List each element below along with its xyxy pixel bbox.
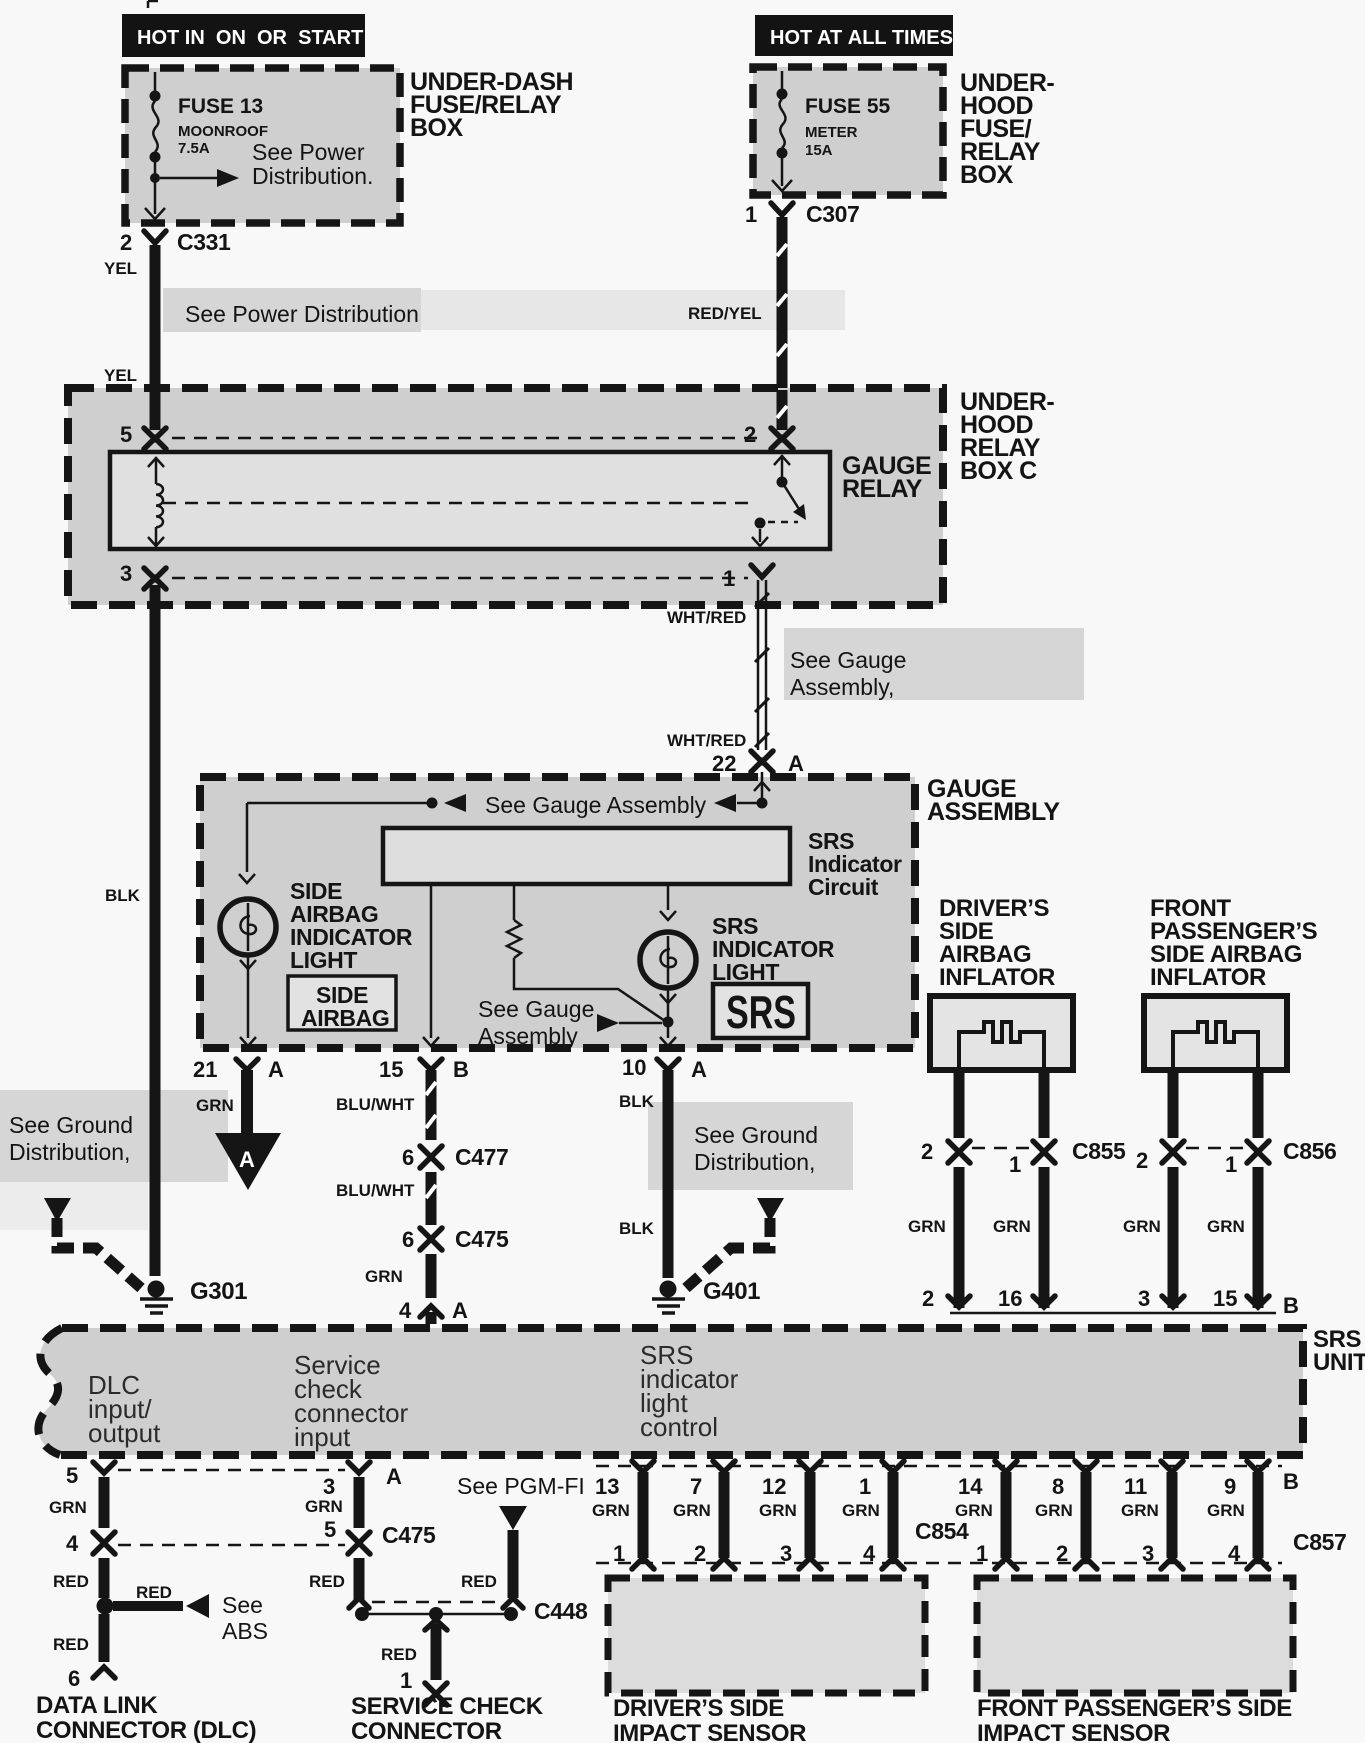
svg-text:14: 14	[958, 1474, 983, 1499]
svg-text:See PGM-FI: See PGM-FI	[457, 1473, 585, 1499]
svg-text:INFLATOR: INFLATOR	[939, 964, 1055, 991]
svg-text:5: 5	[120, 422, 132, 447]
svg-text:2: 2	[1136, 1148, 1148, 1173]
svg-text:2: 2	[120, 230, 132, 255]
svg-text:INFLATOR: INFLATOR	[1150, 964, 1266, 991]
svg-text:BLK: BLK	[619, 1219, 655, 1238]
svg-text:IMPACT SENSOR: IMPACT SENSOR	[613, 1720, 806, 1743]
svg-text:IMPACT SENSOR: IMPACT SENSOR	[977, 1720, 1170, 1743]
svg-text:Distribution.: Distribution.	[252, 163, 373, 189]
svg-text:Distribution,: Distribution,	[694, 1149, 815, 1175]
svg-text:RED: RED	[136, 1583, 172, 1602]
svg-text:GRN: GRN	[759, 1501, 797, 1520]
svg-text:21: 21	[193, 1057, 217, 1082]
svg-text:5: 5	[324, 1517, 336, 1542]
svg-text:1: 1	[400, 1668, 412, 1693]
svg-text:3: 3	[1142, 1541, 1154, 1566]
svg-text:See Gauge Assembly: See Gauge Assembly	[485, 792, 707, 818]
svg-text:METER: METER	[805, 124, 858, 141]
svg-text:C477: C477	[455, 1144, 508, 1170]
svg-text:C856: C856	[1283, 1138, 1336, 1164]
svg-text:4: 4	[66, 1531, 79, 1556]
svg-text:GRN: GRN	[993, 1217, 1031, 1236]
svg-text:ASSEMBLY: ASSEMBLY	[927, 798, 1060, 826]
svg-text:12: 12	[762, 1474, 786, 1499]
svg-text:2: 2	[694, 1541, 706, 1566]
svg-text:RED: RED	[461, 1572, 497, 1591]
svg-text:MOONROOF: MOONROOF	[178, 123, 268, 140]
svg-text:GRN: GRN	[1207, 1217, 1245, 1236]
svg-text:9: 9	[1224, 1474, 1236, 1499]
svg-text:See: See	[222, 1592, 263, 1618]
svg-text:Distribution,: Distribution,	[9, 1139, 130, 1165]
svg-text:C854: C854	[915, 1518, 969, 1544]
svg-text:1: 1	[976, 1541, 988, 1566]
svg-text:C855: C855	[1072, 1138, 1126, 1164]
svg-text:3: 3	[780, 1541, 792, 1566]
svg-text:FUSE 55: FUSE 55	[805, 95, 891, 118]
svg-text:2: 2	[921, 1139, 933, 1164]
svg-text:See Gauge: See Gauge	[478, 996, 594, 1022]
svg-text:GRN: GRN	[1121, 1501, 1159, 1520]
svg-text:G401: G401	[703, 1278, 760, 1305]
svg-text:2: 2	[1056, 1541, 1068, 1566]
svg-text:UNIT: UNIT	[1313, 1349, 1365, 1376]
svg-text:15A: 15A	[805, 142, 833, 159]
svg-text:Assembly,: Assembly,	[790, 674, 894, 700]
svg-text:GRN: GRN	[365, 1267, 403, 1286]
svg-text:See Power Distribution: See Power Distribution	[185, 301, 419, 327]
svg-text:C475: C475	[382, 1522, 436, 1548]
svg-text:GRN: GRN	[842, 1501, 880, 1520]
svg-text:A: A	[691, 1057, 707, 1082]
svg-text:DATA LINK: DATA LINK	[36, 1692, 158, 1719]
svg-text:RED/YEL: RED/YEL	[688, 304, 762, 323]
svg-text:8: 8	[1052, 1474, 1064, 1499]
svg-text:C857: C857	[1293, 1529, 1346, 1555]
svg-text:ABS: ABS	[222, 1618, 268, 1644]
svg-text:AIRBAG: AIRBAG	[301, 1005, 389, 1031]
svg-text:RED: RED	[381, 1645, 417, 1664]
svg-text:SRS: SRS	[726, 986, 796, 1038]
svg-text:6: 6	[68, 1666, 80, 1691]
svg-text:4: 4	[863, 1541, 876, 1566]
svg-text:GRN: GRN	[1035, 1501, 1073, 1520]
svg-text:A: A	[788, 751, 804, 776]
svg-text:See Ground: See Ground	[9, 1112, 133, 1138]
svg-text:SERVICE CHECK: SERVICE CHECK	[351, 1693, 544, 1720]
svg-text:GRN: GRN	[908, 1217, 946, 1236]
svg-text:Assembly: Assembly	[478, 1023, 578, 1049]
svg-text:FUSE 13: FUSE 13	[178, 95, 263, 118]
svg-text:15: 15	[1213, 1286, 1237, 1311]
svg-text:See Gauge: See Gauge	[790, 647, 906, 673]
svg-text:1: 1	[745, 202, 757, 227]
svg-text:CONNECTOR: CONNECTOR	[351, 1718, 502, 1743]
svg-text:B: B	[1283, 1293, 1299, 1318]
svg-text:YEL: YEL	[104, 259, 137, 278]
svg-text:RELAY: RELAY	[842, 475, 923, 503]
svg-text:BOX: BOX	[410, 114, 464, 142]
svg-text:DRIVER’S SIDE: DRIVER’S SIDE	[613, 1695, 784, 1722]
svg-text:output: output	[88, 1418, 161, 1448]
svg-text:C448: C448	[534, 1598, 588, 1624]
svg-text:See Ground: See Ground	[694, 1122, 818, 1148]
svg-text:GRN: GRN	[49, 1498, 87, 1517]
svg-text:HOT IN ON OR START: HOT IN ON OR START	[137, 27, 363, 49]
svg-text:BLK: BLK	[105, 886, 141, 905]
svg-text:B: B	[1283, 1469, 1299, 1494]
svg-text:LIGHT: LIGHT	[290, 947, 357, 973]
svg-text:7.5A: 7.5A	[178, 140, 210, 157]
svg-text:GRN: GRN	[196, 1096, 234, 1115]
svg-text:control: control	[640, 1412, 718, 1442]
svg-text:A: A	[452, 1298, 468, 1323]
svg-text:6: 6	[402, 1145, 414, 1170]
svg-text:C307: C307	[806, 201, 859, 227]
svg-text:GRN: GRN	[1123, 1217, 1161, 1236]
svg-text:YEL: YEL	[104, 366, 137, 385]
svg-text:C331: C331	[177, 229, 231, 255]
svg-text:6: 6	[402, 1227, 414, 1252]
svg-text:BLU/WHT: BLU/WHT	[336, 1095, 415, 1114]
svg-text:CONNECTOR (DLC): CONNECTOR (DLC)	[36, 1717, 256, 1743]
svg-text:GRN: GRN	[673, 1501, 711, 1520]
svg-text:5: 5	[66, 1463, 78, 1488]
svg-text:A: A	[268, 1057, 284, 1082]
svg-text:4: 4	[1228, 1541, 1241, 1566]
svg-text:B: B	[453, 1057, 469, 1082]
svg-text:1: 1	[1009, 1152, 1021, 1177]
svg-text:Circuit: Circuit	[808, 874, 879, 900]
svg-text:RED: RED	[309, 1572, 345, 1591]
svg-text:A: A	[239, 1147, 255, 1172]
svg-text:1: 1	[613, 1541, 625, 1566]
svg-text:10: 10	[622, 1055, 646, 1080]
svg-text:LIGHT: LIGHT	[712, 959, 779, 985]
svg-text:22: 22	[712, 751, 736, 776]
svg-text:GRN: GRN	[592, 1501, 630, 1520]
svg-text:15: 15	[379, 1057, 403, 1082]
svg-text:BOX: BOX	[960, 161, 1014, 189]
svg-text:WHT/RED: WHT/RED	[667, 608, 746, 627]
svg-text:G301: G301	[190, 1278, 247, 1305]
svg-text:1: 1	[859, 1474, 871, 1499]
svg-text:11: 11	[1124, 1474, 1147, 1499]
svg-text:2: 2	[744, 422, 756, 447]
svg-text:FRONT PASSENGER’S SIDE: FRONT PASSENGER’S SIDE	[977, 1695, 1292, 1722]
svg-text:C475: C475	[455, 1226, 509, 1252]
svg-text:BOX C: BOX C	[960, 457, 1037, 485]
svg-text:input: input	[294, 1422, 351, 1452]
svg-text:16: 16	[998, 1286, 1022, 1311]
svg-text:RED: RED	[53, 1635, 89, 1654]
svg-text:BLK: BLK	[619, 1092, 655, 1111]
svg-text:HOT AT ALL TIMES: HOT AT ALL TIMES	[770, 27, 953, 49]
svg-text:1: 1	[1225, 1152, 1237, 1177]
svg-text:13: 13	[595, 1474, 619, 1499]
svg-text:RED: RED	[53, 1572, 89, 1591]
svg-text:GRN: GRN	[1207, 1501, 1245, 1520]
svg-text:3: 3	[120, 561, 132, 586]
svg-text:2: 2	[922, 1286, 934, 1311]
svg-text:7: 7	[690, 1474, 702, 1499]
svg-text:3: 3	[1138, 1286, 1150, 1311]
svg-text:WHT/RED: WHT/RED	[667, 731, 746, 750]
svg-text:A: A	[386, 1464, 402, 1489]
svg-text:See Power: See Power	[252, 139, 365, 165]
svg-text:GRN: GRN	[305, 1497, 343, 1516]
svg-text:3: 3	[323, 1474, 335, 1499]
svg-text:4: 4	[399, 1298, 412, 1323]
svg-text:BLU/WHT: BLU/WHT	[336, 1181, 415, 1200]
